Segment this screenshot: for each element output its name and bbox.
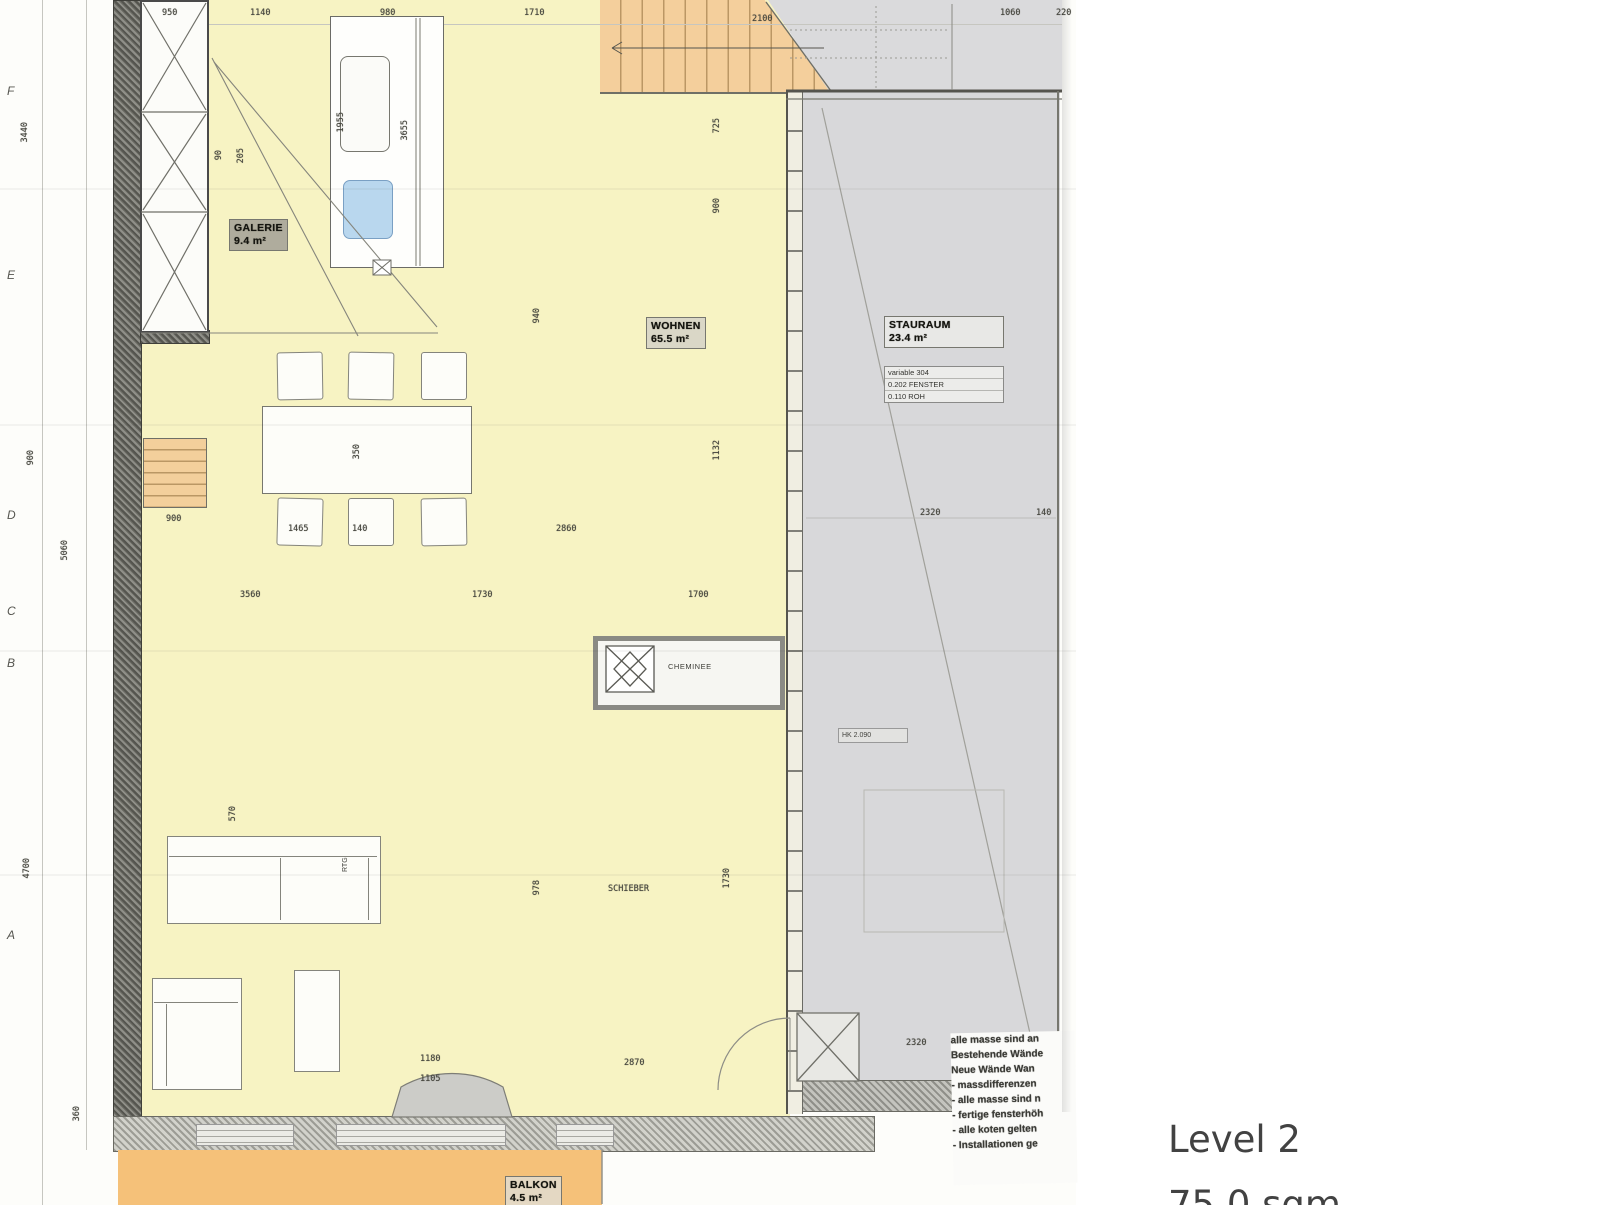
room-label-galerie: GALERIE 9.4 m² (229, 219, 288, 251)
scan-artifact-line (0, 424, 1076, 426)
room-area: 65.5 m² (651, 333, 701, 346)
grid-letter: E (7, 268, 15, 282)
dimension-label: 5060 (60, 540, 70, 560)
room-area: 9.4 m² (234, 235, 283, 248)
storage-walls (786, 4, 1062, 1110)
dimension-label: 1105 (420, 1074, 440, 1084)
dimension-label: 90 (214, 150, 224, 160)
info-table-row: 0.202 FENSTER (885, 378, 1003, 390)
door-swing-arc (718, 1018, 790, 1090)
room-label-wohnen: WOHNEN 65.5 m² (646, 317, 706, 349)
dimension-label: 2860 (556, 524, 576, 534)
grid-letter: A (7, 928, 15, 942)
floor-plan-page: RTG CHEMINEE (0, 0, 1606, 1205)
dimension-label: 1180 (420, 1054, 440, 1064)
grid-letter: B (7, 656, 15, 670)
dimension-label: 2100 (752, 14, 772, 24)
dimension-label: 900 (26, 450, 36, 465)
dimension-label: 570 (228, 806, 238, 821)
dimension-label: 980 (380, 8, 395, 18)
dimension-label: 1700 (688, 590, 708, 600)
dimension-label: 725 (712, 118, 722, 133)
grid-letter: C (7, 604, 16, 618)
room-name: BALKON (510, 1179, 557, 1192)
plan-linework (0, 0, 1076, 1205)
grid-letter: F (7, 84, 14, 98)
dimension-label: 1710 (524, 8, 544, 18)
dimension-label: 900 (166, 514, 181, 524)
room-name: WOHNEN (651, 320, 701, 333)
dimension-label: 360 (72, 1106, 82, 1121)
plan-notes: alle masse sind anBestehende WändeNeue W… (950, 1031, 1077, 1186)
scan-artifact-line (0, 650, 1076, 652)
room-label-balkon: BALKON 4.5 m² (505, 1176, 562, 1205)
bay-projection (392, 1074, 512, 1118)
galerie-void-lines (141, 18, 438, 336)
dimension-label: 3655 (400, 120, 410, 140)
fireplace-flue-symbol (606, 646, 654, 692)
dimension-label: 978 (532, 880, 542, 895)
dimension-label: 2320 (906, 1038, 926, 1048)
dimension-label: 205 (236, 148, 246, 163)
room-name: GALERIE (234, 222, 283, 235)
shaft-cross-bracing (141, 1, 208, 332)
level-area: 75.0 sqm (1168, 1183, 1341, 1205)
dimension-label: 900 (712, 198, 722, 213)
dimension-label: 2870 (624, 1058, 644, 1068)
room-name: STAURAUM (889, 319, 999, 332)
dimension-label: 2320 (920, 508, 940, 518)
dimension-label: 1465 (288, 524, 308, 534)
info-table-row: variable 304 (885, 367, 1003, 378)
top-stair-treads (612, 2, 831, 91)
hidden-edges-dotted (790, 6, 950, 88)
grid-letter: D (7, 508, 16, 522)
room-area: 23.4 m² (889, 332, 999, 345)
level-title: Level 2 (1168, 1118, 1301, 1161)
scan-artifact-line (0, 874, 1076, 876)
dimension-label: 1955 (336, 112, 346, 132)
scan-artifact-line (0, 188, 1076, 190)
dimension-label: 950 (162, 8, 177, 18)
dimension-label: 3560 (240, 590, 260, 600)
chimney-box-bottom (797, 1013, 859, 1081)
dimension-label: 350 (352, 444, 362, 459)
dimension-label: 1730 (472, 590, 492, 600)
dimension-label: 1060 (1000, 8, 1020, 18)
dimension-label: SCHIEBER (608, 884, 649, 894)
scan-paper-edge (1062, 0, 1072, 1112)
dimension-label: 1730 (722, 868, 732, 888)
info-table-row: 0.110 ROH (885, 390, 1003, 402)
window-info-table: variable 3040.202 FENSTER0.110 ROH (884, 366, 1004, 403)
dimension-label: 940 (532, 308, 542, 323)
heater-tag: HK 2.090 (838, 728, 908, 743)
scanned-plan: RTG CHEMINEE (0, 0, 1076, 1205)
note-line: - Installationen ge (953, 1136, 1077, 1154)
dimension-label: 1140 (250, 8, 270, 18)
room-label-stauraum: STAURAUM 23.4 m² (884, 316, 1004, 348)
room-area: 4.5 m² (510, 1192, 557, 1205)
dimension-label: 140 (352, 524, 367, 534)
dimension-label: 140 (1036, 508, 1051, 518)
dimension-label: 1132 (712, 440, 722, 460)
dimension-label: 3440 (20, 122, 30, 142)
